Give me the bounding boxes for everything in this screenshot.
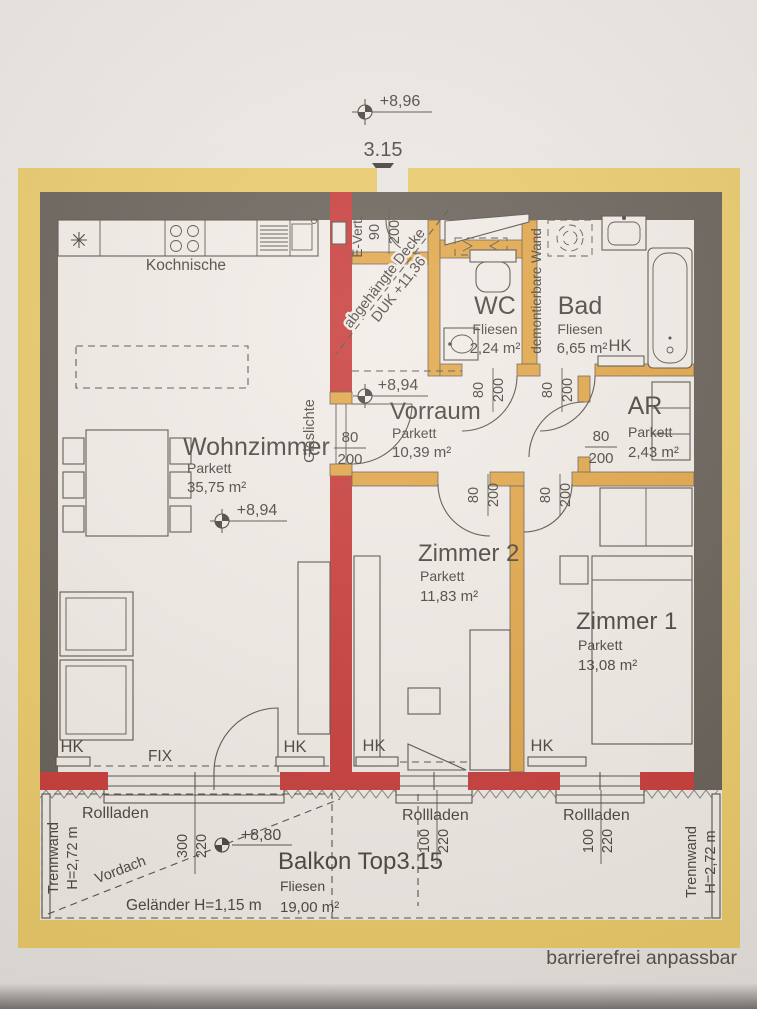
floor-type: Fliesen — [557, 321, 602, 337]
dining-table — [86, 430, 168, 536]
window-balcony-door-zimmer2 — [400, 772, 468, 790]
room-area: 13,08 m² — [578, 657, 637, 674]
room-area: 19,00 m² — [280, 899, 339, 916]
hk-label-wohnzimmer-left: HK — [61, 738, 84, 756]
site-elevation-label: +8,96 — [380, 93, 421, 110]
wc-toilet — [476, 262, 510, 292]
dim-wz-door-width: 80 — [342, 429, 359, 446]
dim-evert-width: 90 — [367, 224, 383, 240]
room-area: 10,39 m² — [392, 444, 451, 461]
floor-type: Parkett — [392, 425, 436, 441]
window-fix-wohnzimmer — [108, 772, 280, 790]
hk-label-bad: HK — [609, 337, 632, 355]
dim-wc-width: 80 — [471, 382, 487, 398]
room-label-bad: Bad — [558, 292, 602, 320]
sofa-1 — [60, 592, 133, 656]
floor-type: Fliesen — [472, 321, 517, 337]
hk-label-zimmer2: HK — [363, 737, 386, 755]
room-label-kochnische: Kochnische — [146, 257, 226, 274]
dim-wc-height: 200 — [491, 378, 507, 402]
sideboard — [298, 562, 330, 734]
dim-ar-door-height: 200 — [588, 450, 613, 467]
evert-label: E-Vert. — [350, 216, 365, 257]
room-label-vorraum: Vorraum — [390, 398, 481, 425]
bathtub — [648, 248, 692, 368]
hk-label-zimmer1: HK — [531, 737, 554, 755]
hk-label-wohnzimmer-right: HK — [284, 738, 307, 756]
dim-zimmer1-height: 200 — [558, 483, 574, 507]
stool-zimmer2 — [408, 688, 440, 714]
room-area: 11,83 m² — [420, 588, 478, 605]
window-zimmer1 — [560, 772, 640, 790]
floor-type: Parkett — [628, 424, 672, 440]
glaslichte-label: Glaslichte — [302, 399, 318, 463]
dim-zimmer1-width: 80 — [538, 487, 554, 503]
rollladen-label: Rollladen — [563, 807, 630, 824]
demontierbare-wand-label: demontierbare Wand — [529, 228, 544, 354]
trennwand-right-height: H=2,72 m — [703, 830, 719, 893]
trennwand-right-label: Trennwand — [684, 826, 700, 898]
site-elevation-marker: +8,96 — [352, 93, 432, 125]
floor-type: Parkett — [420, 568, 464, 584]
dim-window-width: 100 — [581, 829, 597, 853]
room-label-zimmer2: Zimmer 2 — [418, 540, 519, 567]
room-label-wc: WC — [474, 292, 516, 320]
dim-window-height: 220 — [436, 829, 452, 853]
room-label-zimmer1: Zimmer 1 — [576, 608, 677, 635]
level-label: +8,94 — [237, 502, 278, 519]
fix-glazing-label: FIX — [148, 748, 173, 765]
room-label-ar: AR — [628, 392, 663, 420]
dim-zimmer2-height: 200 — [486, 483, 502, 507]
trennwand-left-label: Trennwand — [46, 822, 62, 894]
dim-zimmer2-width: 80 — [466, 487, 482, 503]
nightstand — [560, 556, 588, 584]
dim-window-height: 220 — [194, 834, 210, 858]
dim-wz-door-height: 200 — [337, 451, 362, 468]
room-area: 2,24 m² — [470, 340, 521, 357]
dim-window-width: 300 — [175, 834, 191, 858]
gelaender-label: Geländer H=1,15 m — [126, 897, 262, 914]
dim-evert-height: 200 — [387, 220, 403, 244]
dim-window-height: 220 — [600, 829, 616, 853]
dim-ar-door-width: 80 — [593, 428, 610, 445]
trennwand-left-height: H=2,72 m — [65, 826, 81, 889]
kitchen-counter: ✳ — [58, 219, 318, 257]
floor-type: Parkett — [578, 637, 622, 653]
level-label: +8,80 — [241, 827, 282, 844]
floor-type: Parkett — [187, 460, 231, 476]
room-area: 35,75 m² — [187, 479, 246, 496]
footer-note: barrierefrei anpassbar — [546, 947, 737, 969]
floor-type: Fliesen — [280, 878, 325, 894]
sofa-2 — [60, 660, 133, 740]
floor-plan: +8,96 3.15 — [0, 0, 757, 1009]
rollladen-label: Rollladen — [402, 807, 469, 824]
appliance-symbol-icon: ✳ — [70, 228, 88, 253]
level-label: +8,94 — [378, 377, 419, 394]
unit-number-label: 3.15 — [364, 139, 403, 161]
dim-bad-height: 200 — [560, 378, 576, 402]
dim-bad-width: 80 — [540, 382, 556, 398]
room-area: 6,65 m² — [557, 340, 608, 357]
rollladen-label: Rollladen — [82, 805, 149, 822]
scanned-floor-plan-page: +8,96 3.15 — [0, 0, 757, 1009]
desk-zimmer2 — [470, 630, 510, 770]
wardrobe-zimmer2 — [354, 556, 380, 766]
wc-cistern — [470, 250, 516, 262]
dim-window-width: 100 — [417, 829, 433, 853]
room-area: 2,43 m² — [628, 444, 679, 461]
